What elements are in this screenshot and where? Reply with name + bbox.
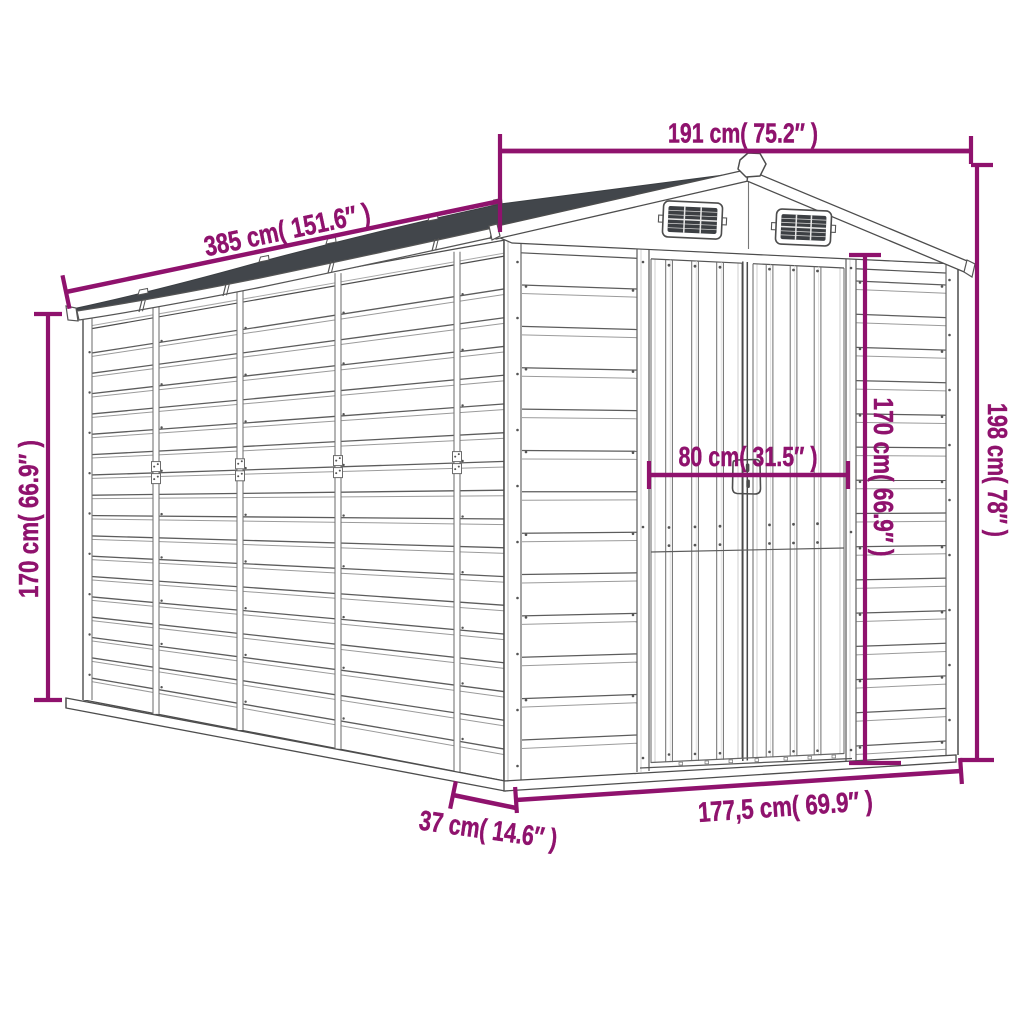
svg-text:198 cm( 78″ ): 198 cm( 78″ ) [982, 403, 1013, 537]
svg-text:170 cm( 66.9″ ): 170 cm( 66.9″ ) [13, 440, 44, 598]
svg-text:80 cm( 31.5″ ): 80 cm( 31.5″ ) [679, 441, 818, 472]
svg-text:191 cm( 75.2″ ): 191 cm( 75.2″ ) [668, 118, 818, 149]
svg-text:170 cm( 66.9″ ): 170 cm( 66.9″ ) [868, 398, 899, 557]
